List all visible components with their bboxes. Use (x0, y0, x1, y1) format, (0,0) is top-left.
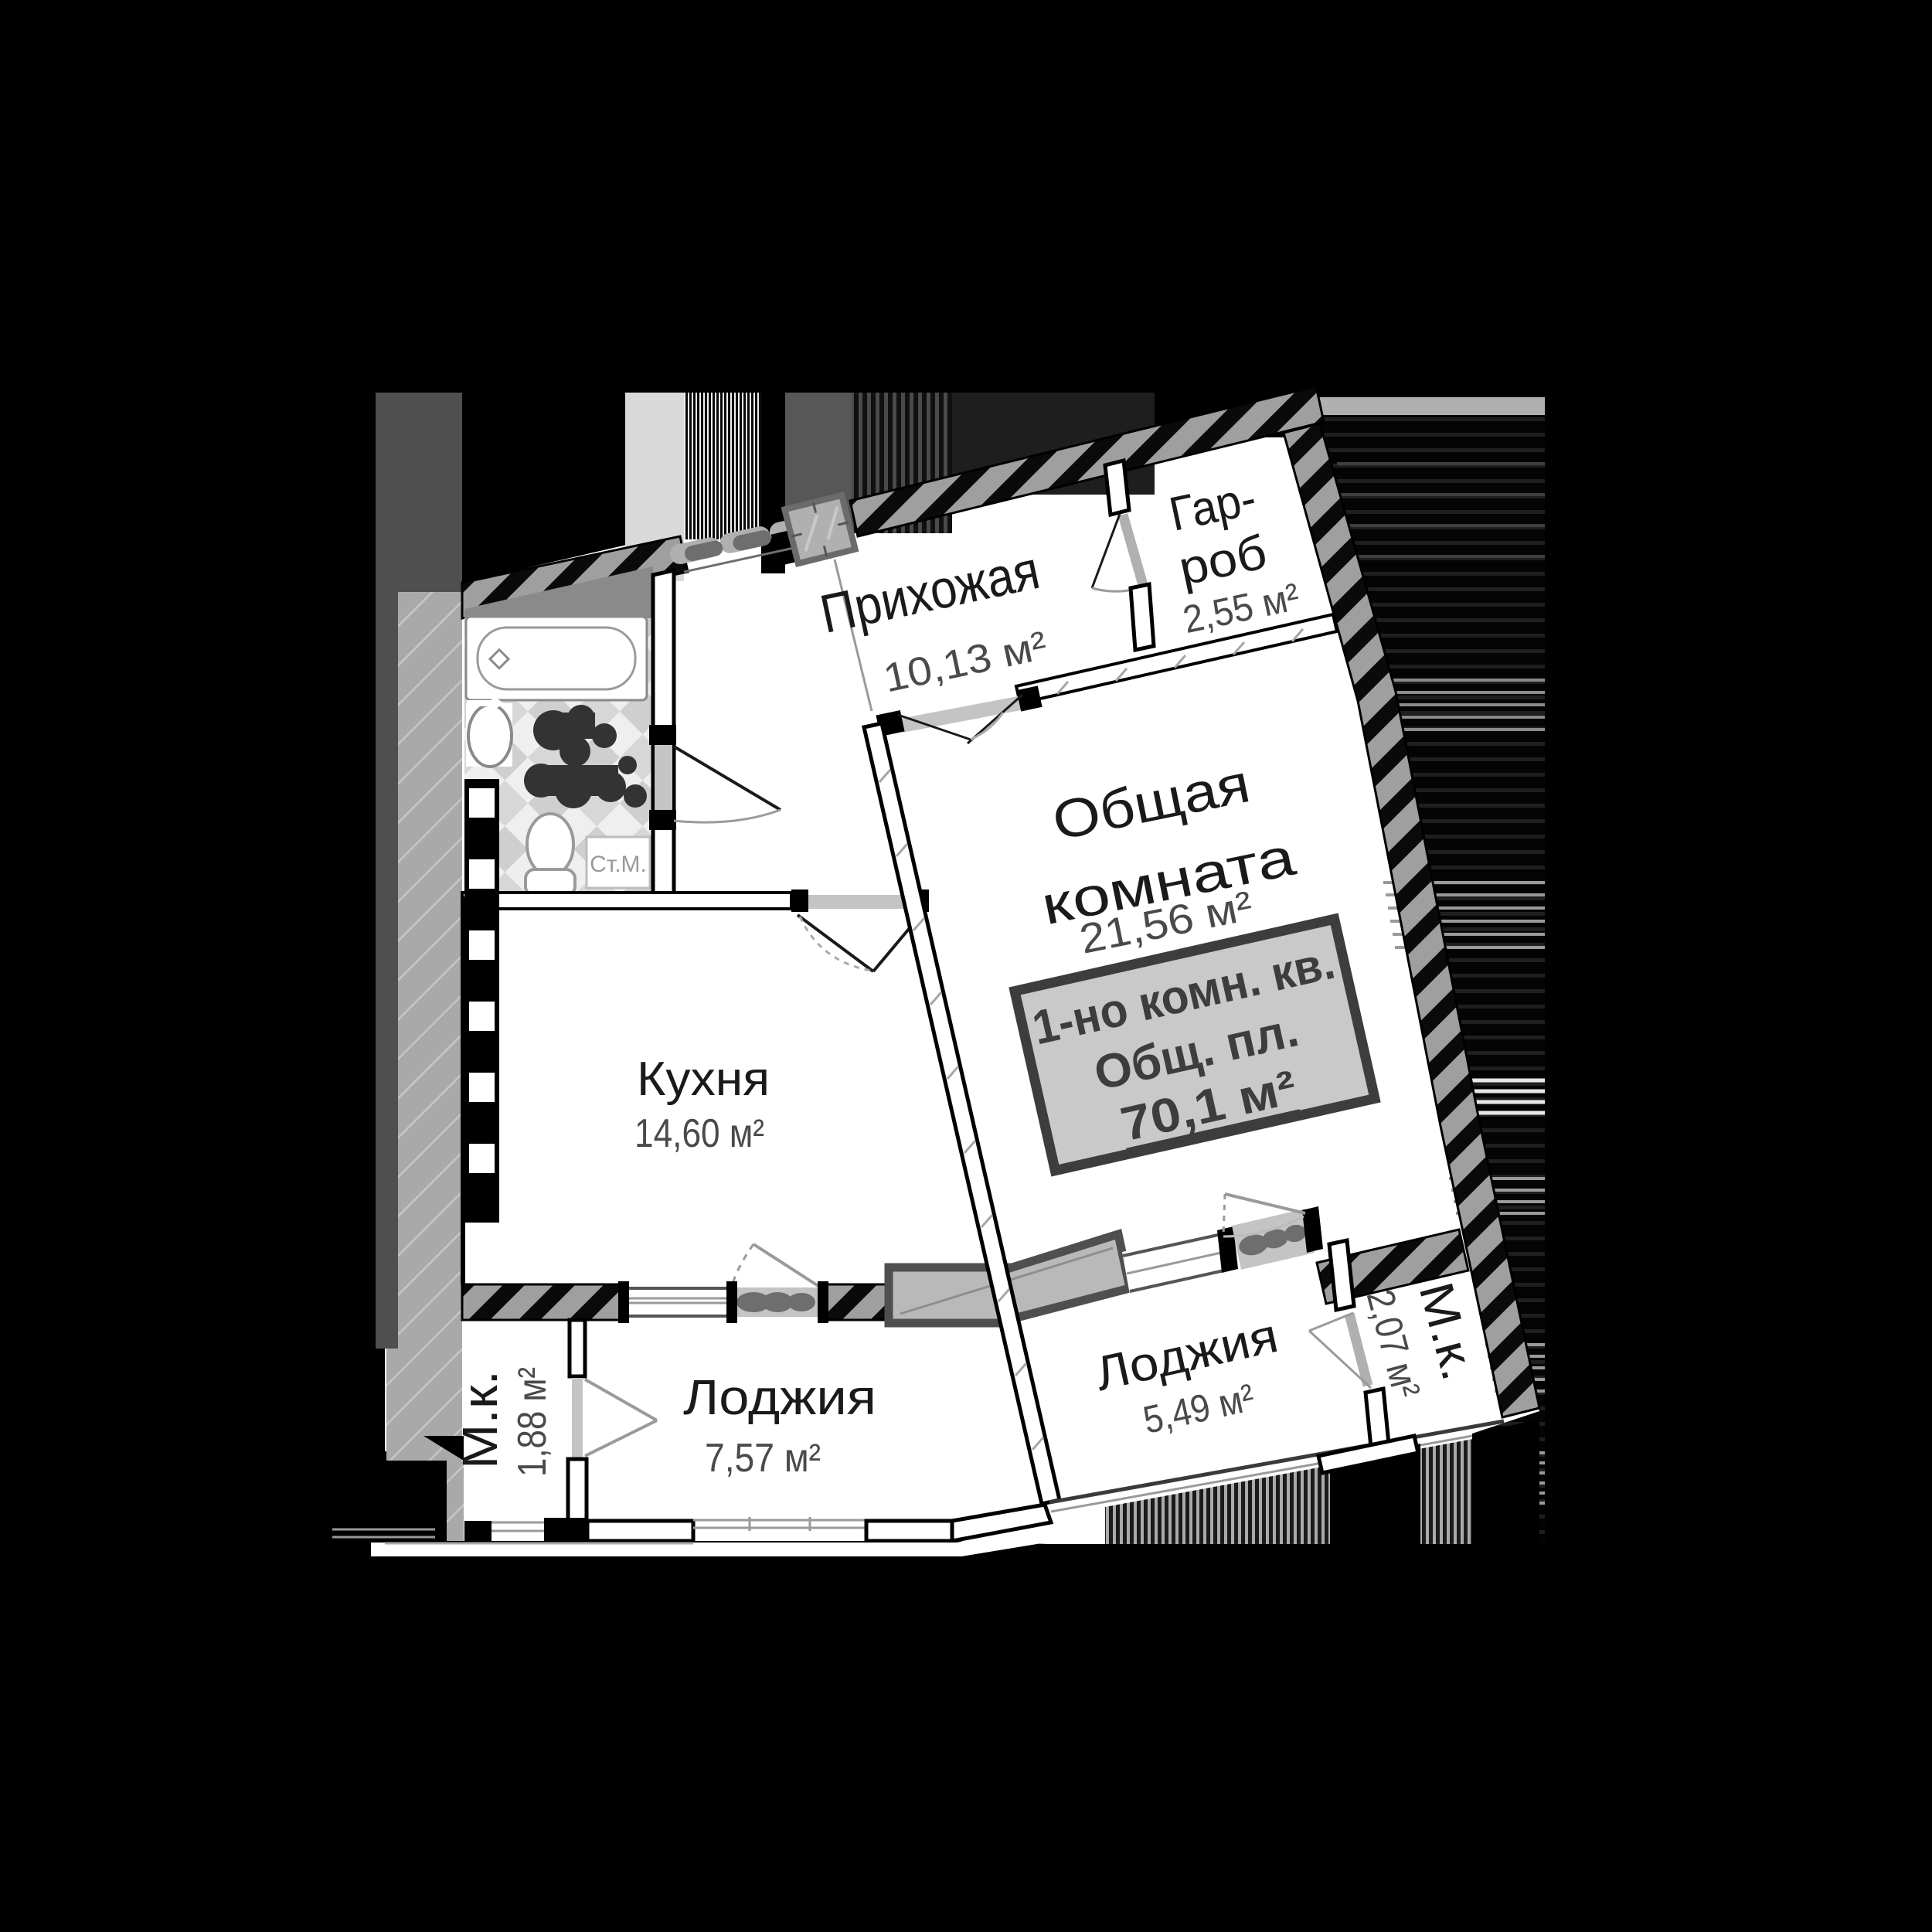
svg-text:Ст.М.: Ст.М. (590, 852, 647, 877)
svg-text:14,60 м²: 14,60 м² (634, 1111, 764, 1156)
svg-text:Кухня: Кухня (637, 1053, 770, 1106)
svg-text:1,88 м²: 1,88 м² (510, 1367, 555, 1477)
svg-text:Лоджия: Лоджия (683, 1369, 876, 1425)
svg-text:7,57 м²: 7,57 м² (705, 1436, 821, 1481)
svg-text:М.к.: М.к. (452, 1370, 508, 1469)
